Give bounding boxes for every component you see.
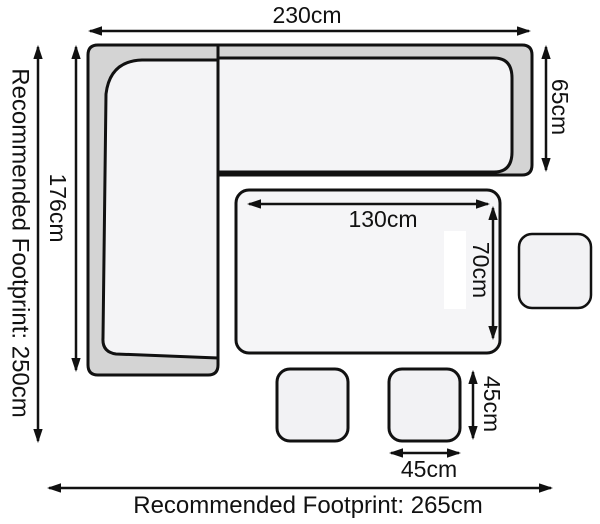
table-width-label: 130cm xyxy=(348,206,417,232)
diagram-canvas: 230cm Recommended Footprint: 250cm 176cm… xyxy=(0,0,600,524)
footprint-left-label: Recommended Footprint: 250cm xyxy=(7,68,34,418)
footstool-left xyxy=(277,369,348,441)
stool-width-label: 45cm xyxy=(401,456,457,482)
footstool-side xyxy=(519,234,591,308)
sofa-right-depth-label: 65cm xyxy=(547,79,573,135)
sofa-right-seat-cushion xyxy=(218,58,512,172)
sofa-width-label: 230cm xyxy=(272,2,341,28)
sofa-corner-seat-cushion xyxy=(103,60,218,358)
footprint-diagram: 230cm Recommended Footprint: 250cm 176cm… xyxy=(0,0,600,524)
footstool-right xyxy=(389,369,460,441)
table-depth-label-backing xyxy=(444,231,466,309)
footprint-bottom-label: Recommended Footprint: 265cm xyxy=(133,492,483,519)
sofa-left-depth-label: 176cm xyxy=(45,173,71,242)
table-depth-label: 70cm xyxy=(468,242,494,298)
stool-depth-label: 45cm xyxy=(479,376,505,432)
